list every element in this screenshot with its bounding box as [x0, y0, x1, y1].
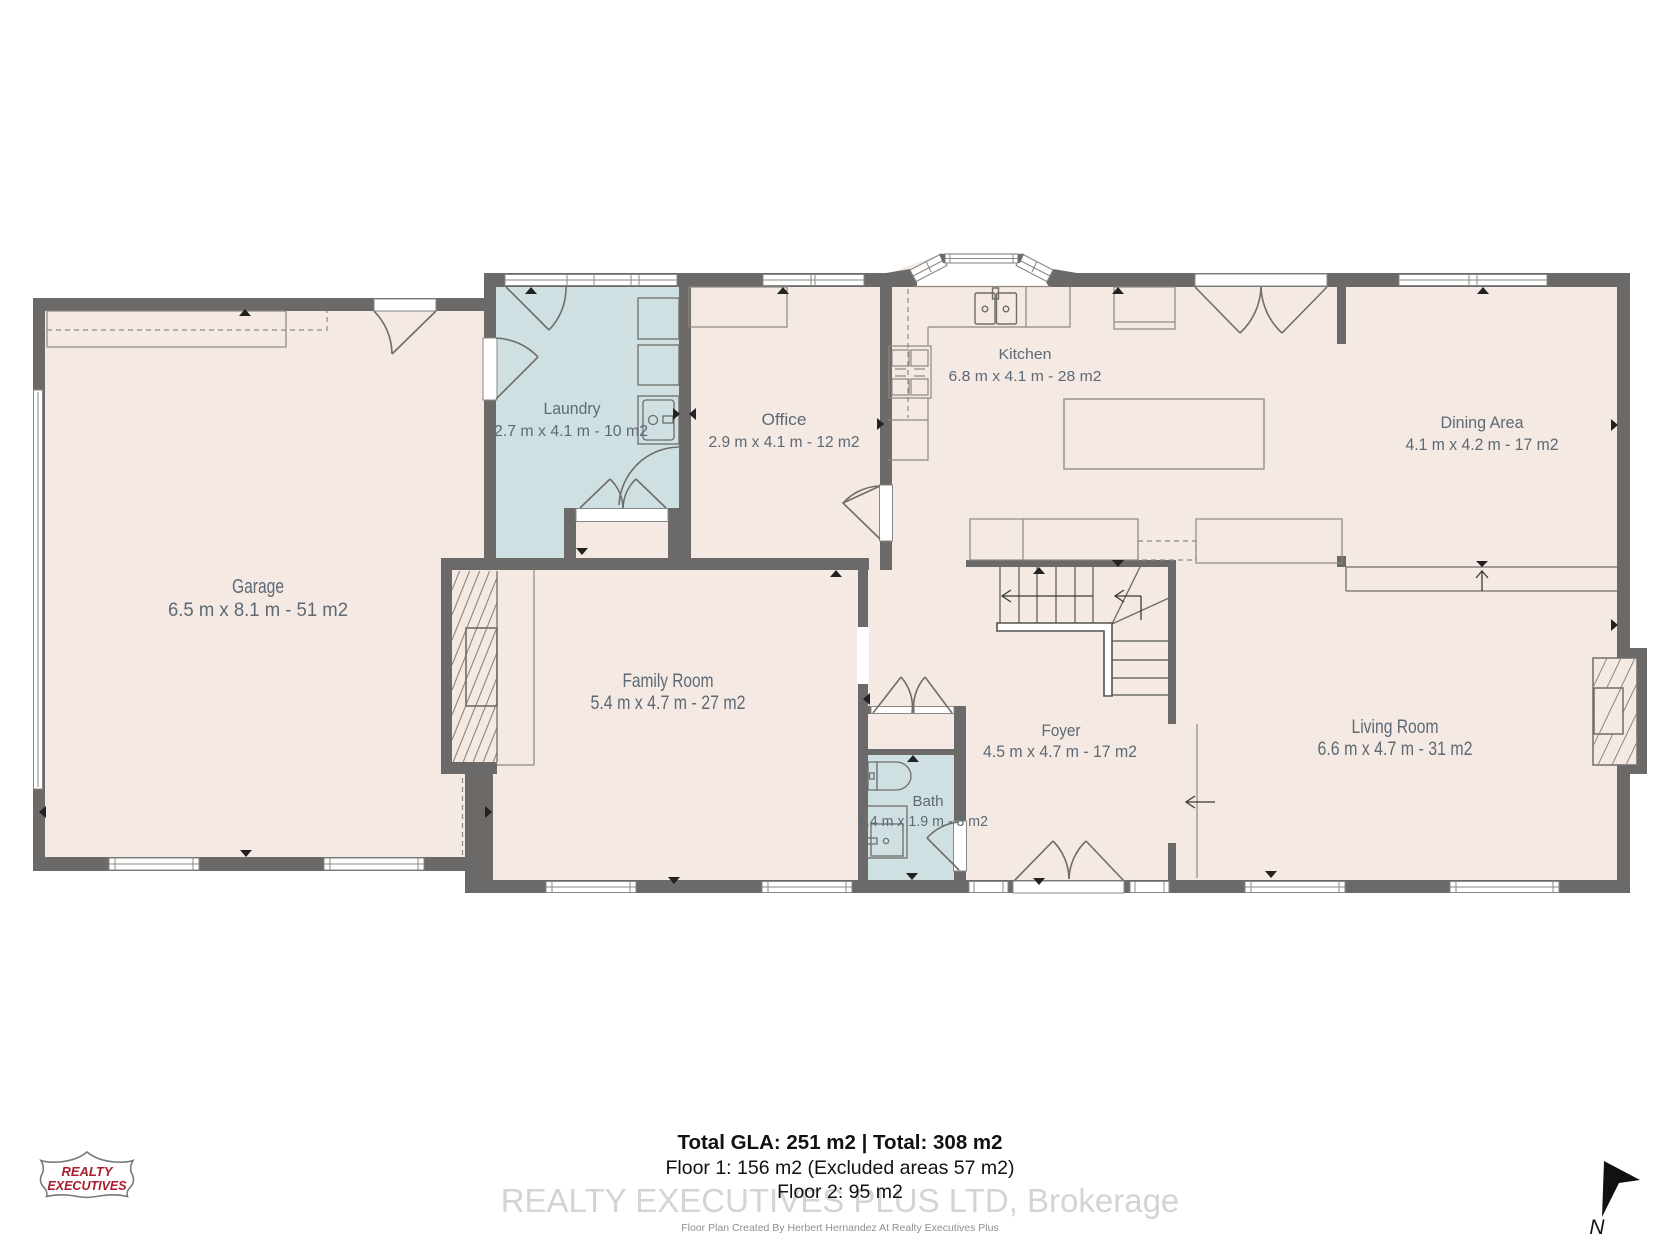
svg-text:1.4 m x 1.9 m - 3 m2: 1.4 m x 1.9 m - 3 m2	[858, 814, 988, 830]
svg-text:Foyer: Foyer	[1042, 722, 1081, 740]
svg-text:6.5 m x 8.1 m - 51 m2: 6.5 m x 8.1 m - 51 m2	[168, 599, 348, 621]
svg-text:Floor 2: 95 m2: Floor 2: 95 m2	[777, 1181, 903, 1203]
svg-text:N: N	[1589, 1216, 1605, 1239]
svg-text:Dining Area: Dining Area	[1441, 413, 1525, 432]
svg-text:Family Room: Family Room	[623, 670, 714, 692]
svg-text:Kitchen: Kitchen	[999, 346, 1052, 363]
svg-text:Floor 1: 156 m2 (Excluded area: Floor 1: 156 m2 (Excluded areas 57 m2)	[665, 1157, 1014, 1179]
svg-text:Total GLA: 251 m2 | Total: 308: Total GLA: 251 m2 | Total: 308 m2	[677, 1131, 1002, 1154]
svg-text:2.7 m x 4.1 m - 10 m2: 2.7 m x 4.1 m - 10 m2	[494, 423, 648, 440]
svg-text:2.9 m x 4.1 m - 12 m2: 2.9 m x 4.1 m - 12 m2	[709, 434, 860, 451]
svg-text:Bath: Bath	[913, 793, 944, 810]
svg-text:Office: Office	[762, 411, 807, 429]
svg-text:4.1 m x 4.2 m - 17 m2: 4.1 m x 4.2 m - 17 m2	[1406, 436, 1559, 454]
svg-text:4.5 m x 4.7 m - 17 m2: 4.5 m x 4.7 m - 17 m2	[983, 743, 1137, 761]
svg-text:EXECUTIVES: EXECUTIVES	[47, 1179, 127, 1193]
svg-text:6.6 m x 4.7 m - 31 m2: 6.6 m x 4.7 m - 31 m2	[1318, 738, 1473, 760]
svg-text:Laundry: Laundry	[544, 400, 602, 418]
svg-text:Living Room: Living Room	[1352, 716, 1439, 738]
svg-text:5.4 m x 4.7 m - 27 m2: 5.4 m x 4.7 m - 27 m2	[591, 692, 746, 714]
svg-text:6.8 m x 4.1 m - 28 m2: 6.8 m x 4.1 m - 28 m2	[949, 368, 1102, 385]
svg-text:Floor Plan Created By Herbert: Floor Plan Created By Herbert Hernandez …	[681, 1222, 998, 1234]
svg-text:Garage: Garage	[232, 576, 284, 598]
svg-text:REALTY: REALTY	[61, 1164, 113, 1179]
